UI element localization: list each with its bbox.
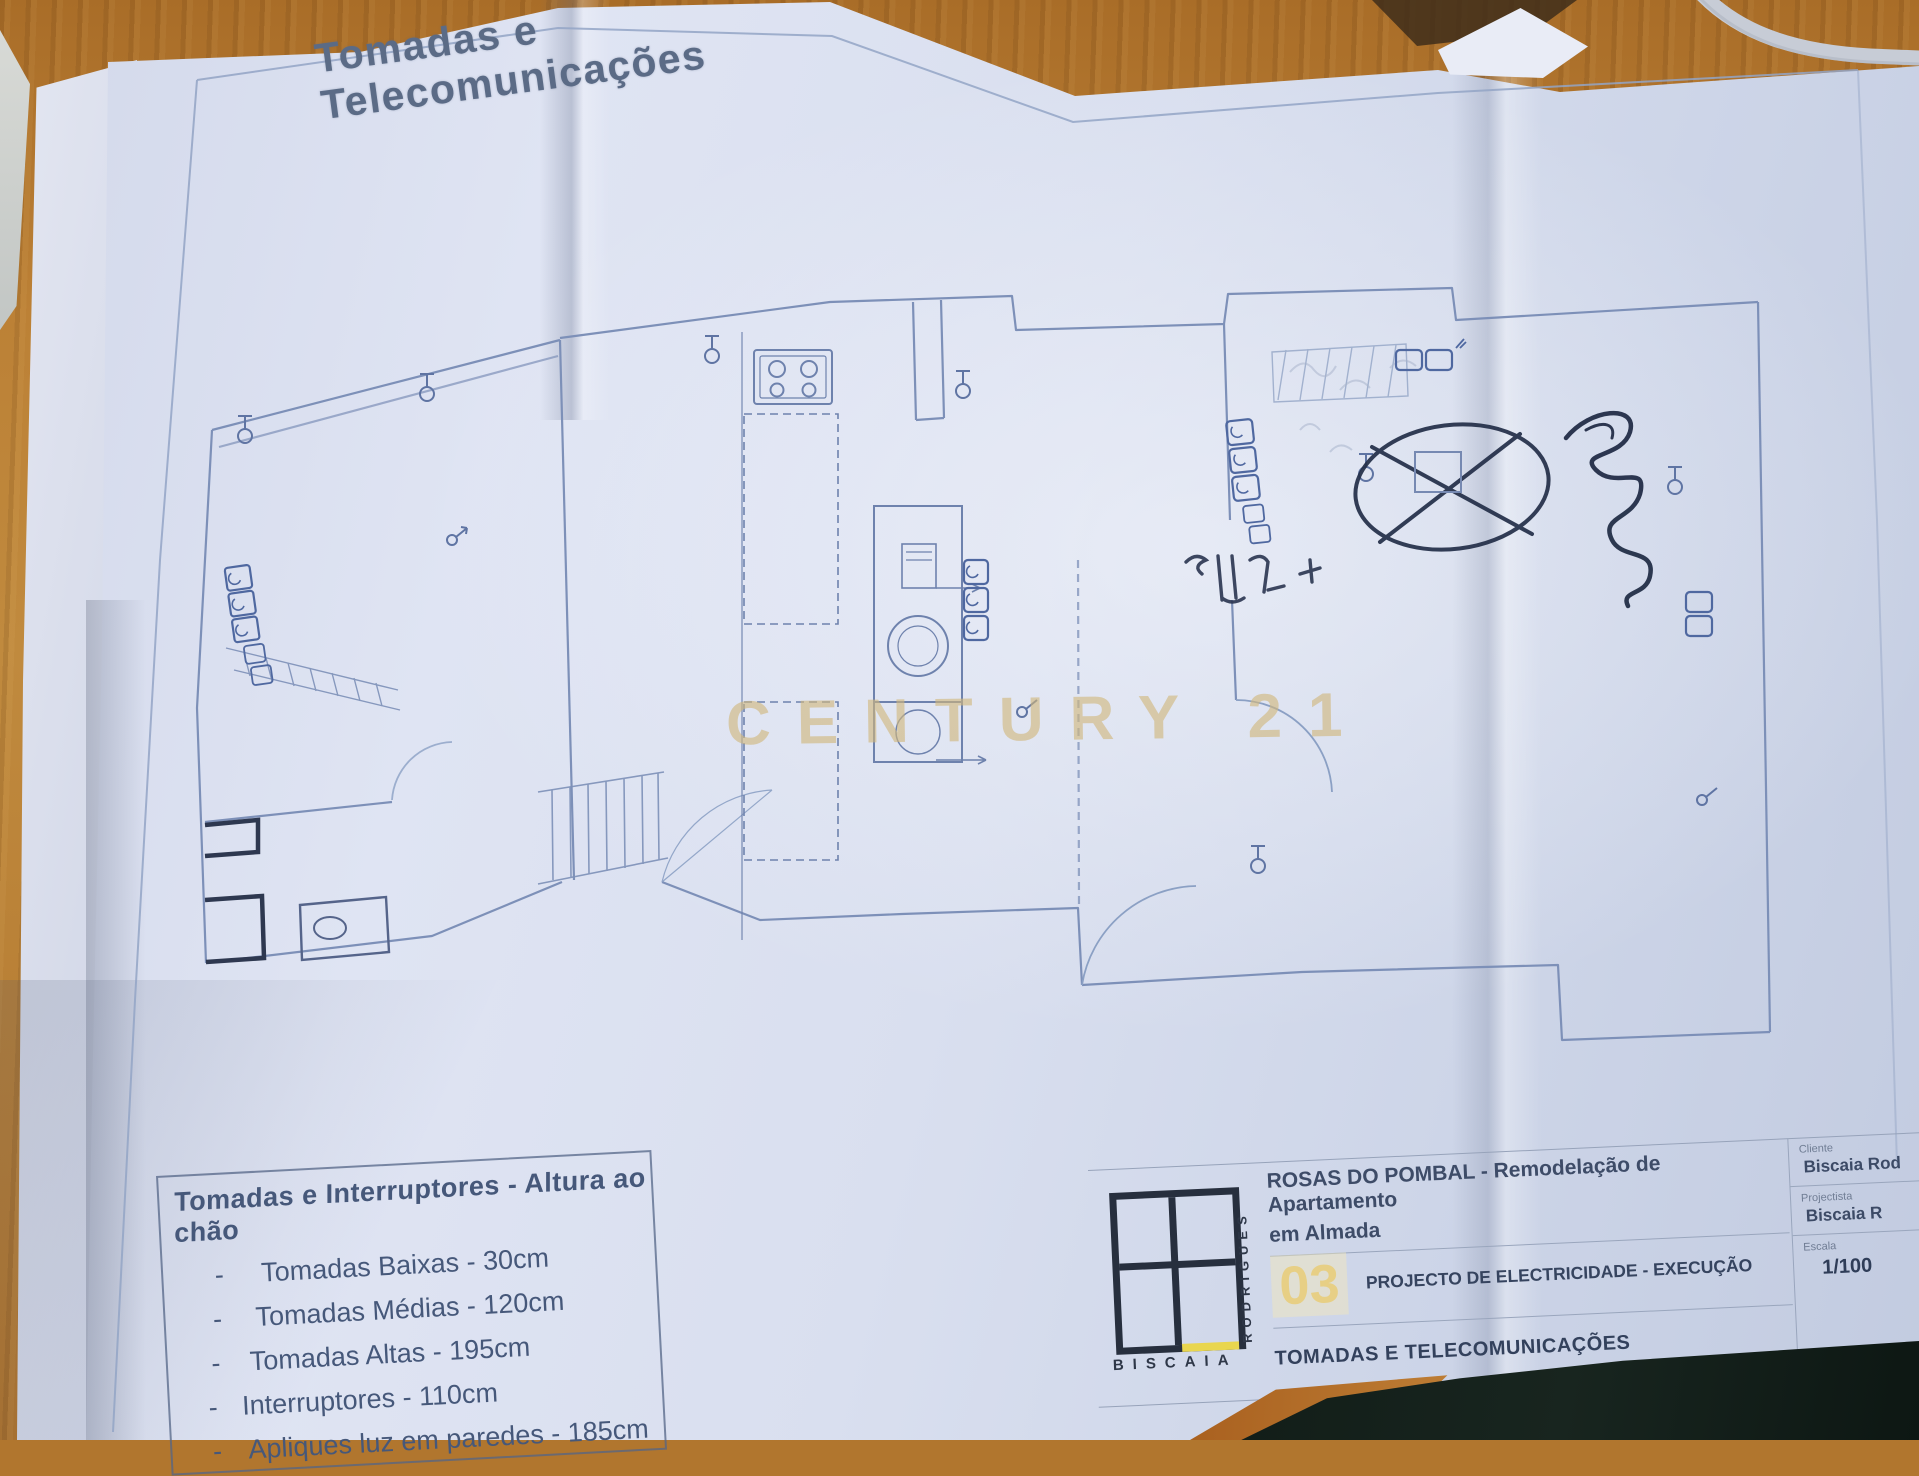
century21-watermark: CENTURY 21 — [726, 680, 1369, 760]
pen-annotation-circled-x — [1348, 414, 1556, 561]
closet-hatch — [1272, 344, 1408, 402]
photo-of-electrical-floor-plan: { "plan": { "title": "Tomadas e Telecomu… — [0, 0, 1919, 1440]
divider — [1793, 1228, 1919, 1236]
logo-word-biscaia: BISCAIA — [1113, 1351, 1252, 1374]
legend-bullet: - — [183, 1391, 243, 1425]
subject-title: PROJECTO DE ELECTRICIDADE - EXECUÇÃO — [1365, 1254, 1752, 1293]
stairs-hatch — [538, 772, 668, 884]
socket-symbols — [225, 339, 1712, 687]
legend-item-text: Interruptores - 110cm — [241, 1377, 498, 1421]
legend-bullet: - — [177, 1258, 263, 1293]
title-block-right-column: Cliente Biscaia Rod Projectista Biscaia … — [1787, 1131, 1919, 1376]
kitchen-fixtures — [742, 332, 986, 940]
legend-item-text: Tomadas Altas - 195cm — [249, 1332, 531, 1378]
sheet-number: 03 — [1270, 1252, 1349, 1317]
biscaia-rodrigues-logo: BISCAIA RODRIGUES — [1105, 1180, 1264, 1393]
switch-symbols — [447, 527, 1717, 805]
legend-item-text: Tomadas Médias - 120cm — [255, 1286, 565, 1333]
legend-item: - Apliques luz em paredes - 185cm — [186, 1413, 665, 1469]
legend-bullet: - — [179, 1302, 257, 1337]
logo-yellow-accent — [1182, 1341, 1239, 1352]
legend-item-text: Tomadas Baixas - 30cm — [260, 1243, 549, 1289]
logo-grid-vline — [1168, 1197, 1182, 1345]
apartment-walls — [197, 288, 1770, 1040]
pen-annotation-note — [1186, 556, 1320, 602]
legend-title: Tomadas e Interruptores - Altura ao chão — [174, 1162, 651, 1249]
bathroom — [205, 820, 389, 962]
pen-annotation-scribble — [1566, 413, 1651, 606]
scale-value: 1/100 — [1822, 1251, 1919, 1280]
client-value: Biscaia Rod — [1803, 1151, 1919, 1178]
legend-box: Tomadas e Interruptores - Altura ao chão… — [156, 1150, 667, 1476]
logo-grid-icon — [1109, 1187, 1246, 1355]
scale-label: Escala — [1803, 1235, 1919, 1254]
designer-value: Biscaia R — [1805, 1200, 1919, 1227]
ceiling-lamp-symbols — [238, 336, 1682, 873]
divider — [1790, 1179, 1919, 1187]
legend-bullet: - — [181, 1346, 251, 1381]
